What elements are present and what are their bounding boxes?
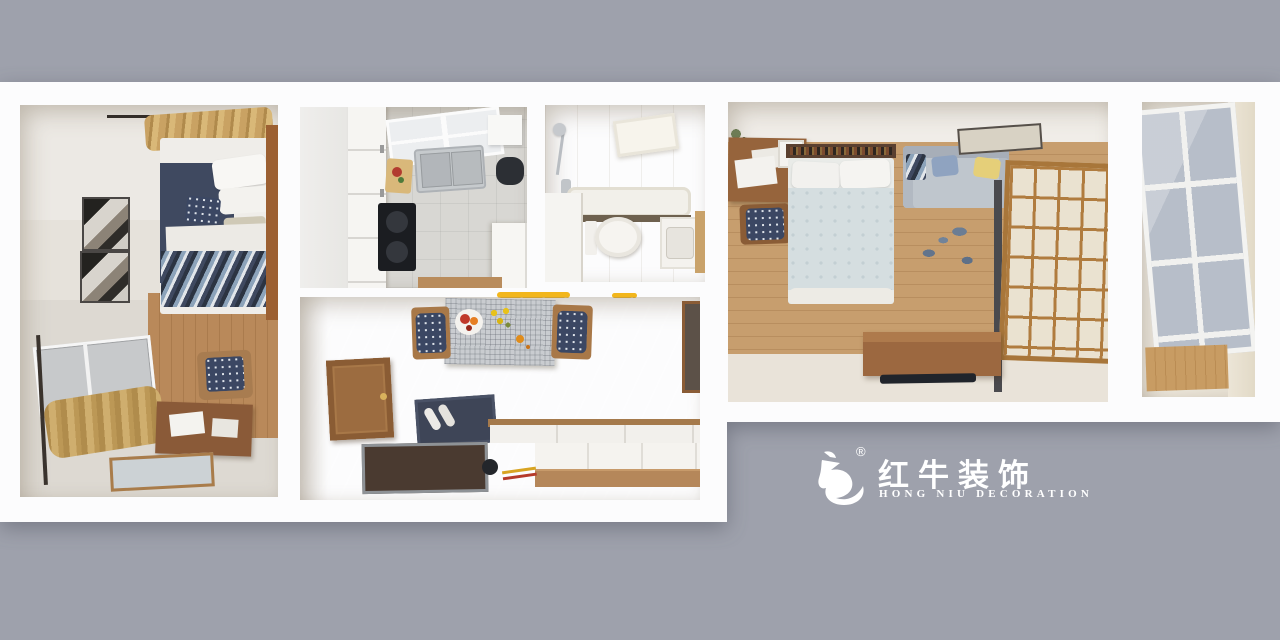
master-duvet	[788, 188, 894, 290]
kettle	[496, 157, 524, 185]
vanity-basin	[666, 227, 694, 259]
bathtub	[567, 187, 691, 217]
dark-floor-mat	[362, 442, 489, 494]
dining-chair-right-cushion	[556, 310, 587, 353]
table-orange-bits	[516, 335, 524, 343]
living-left-wall-shade	[300, 297, 328, 500]
room-bathroom	[545, 105, 705, 282]
paper-towel-box	[488, 115, 522, 145]
room-balcony	[1142, 102, 1255, 397]
desk-chair-cushion	[205, 356, 245, 392]
floor-picture-frame	[109, 452, 215, 491]
sofa-pillow-chevron	[906, 154, 926, 180]
sofa-pillow-blue	[931, 155, 959, 178]
shower-head	[553, 123, 566, 136]
brand-name-english: HONG NIU DECORATION	[879, 488, 1093, 500]
room-bedroom-1	[20, 105, 278, 497]
toy-sticks	[502, 467, 536, 475]
bed-fold-white	[166, 223, 273, 253]
toilet-bowl	[595, 217, 641, 257]
desk-papers	[169, 411, 205, 436]
wall-art-frame-2	[80, 251, 130, 303]
shoji-lattice-window	[999, 160, 1108, 364]
cutting-board-veg	[392, 167, 402, 177]
cooktop-burner-2	[386, 241, 408, 263]
dining-chair-left-cushion	[415, 312, 446, 353]
living-wall-art	[682, 301, 700, 393]
sink-basin-left	[420, 152, 452, 188]
fruits	[460, 314, 470, 324]
bed-cushion-navy	[185, 195, 222, 224]
wall-cabinet-row	[490, 425, 700, 443]
vanity-wood-side	[695, 211, 705, 273]
tv-flat	[880, 373, 976, 384]
cabinet-handle-2	[380, 189, 384, 197]
ceiling-light	[613, 113, 679, 157]
apartment-top-view-render: ® 红牛装饰 HONG NIU DECORATION	[0, 0, 1280, 640]
bed-chevron-throw	[161, 251, 275, 307]
flower-bouquet	[486, 305, 516, 333]
registered-trademark: ®	[856, 444, 866, 459]
company-watermark: ® 红牛装饰 HONG NIU DECORATION	[816, 444, 1066, 508]
kitchen-threshold-wood	[418, 277, 502, 288]
desk-book	[211, 418, 238, 438]
round-rug	[900, 210, 996, 282]
shoe-mat-navy	[414, 394, 497, 447]
kitchen-left-wall	[300, 107, 350, 288]
door-knob	[380, 393, 387, 400]
bed-headboard	[266, 125, 278, 320]
wall-art-frame-1	[82, 197, 130, 251]
room-kitchen	[300, 107, 527, 288]
sink-basin-right	[451, 150, 483, 186]
master-desk-papers	[734, 156, 777, 189]
storage-bench-wood-front	[535, 469, 700, 487]
headboard-books	[790, 147, 892, 155]
balcony-window	[1142, 102, 1255, 360]
master-pillow-1	[791, 161, 840, 190]
cabinet-handle-1	[380, 145, 384, 153]
sofa-pillow-yellow	[973, 156, 1002, 179]
toy-ball	[482, 459, 498, 475]
cooktop-burner-1	[386, 211, 408, 233]
tv-cabinet	[863, 332, 1001, 376]
room-master-bedroom	[728, 102, 1108, 402]
glass-partition	[545, 193, 583, 282]
master-bed-foot-roll	[788, 288, 894, 304]
master-pillow-2	[839, 159, 890, 190]
room-living-dining	[300, 297, 700, 500]
balcony-wood-box	[1145, 345, 1228, 392]
master-chair-cushion	[745, 207, 784, 240]
